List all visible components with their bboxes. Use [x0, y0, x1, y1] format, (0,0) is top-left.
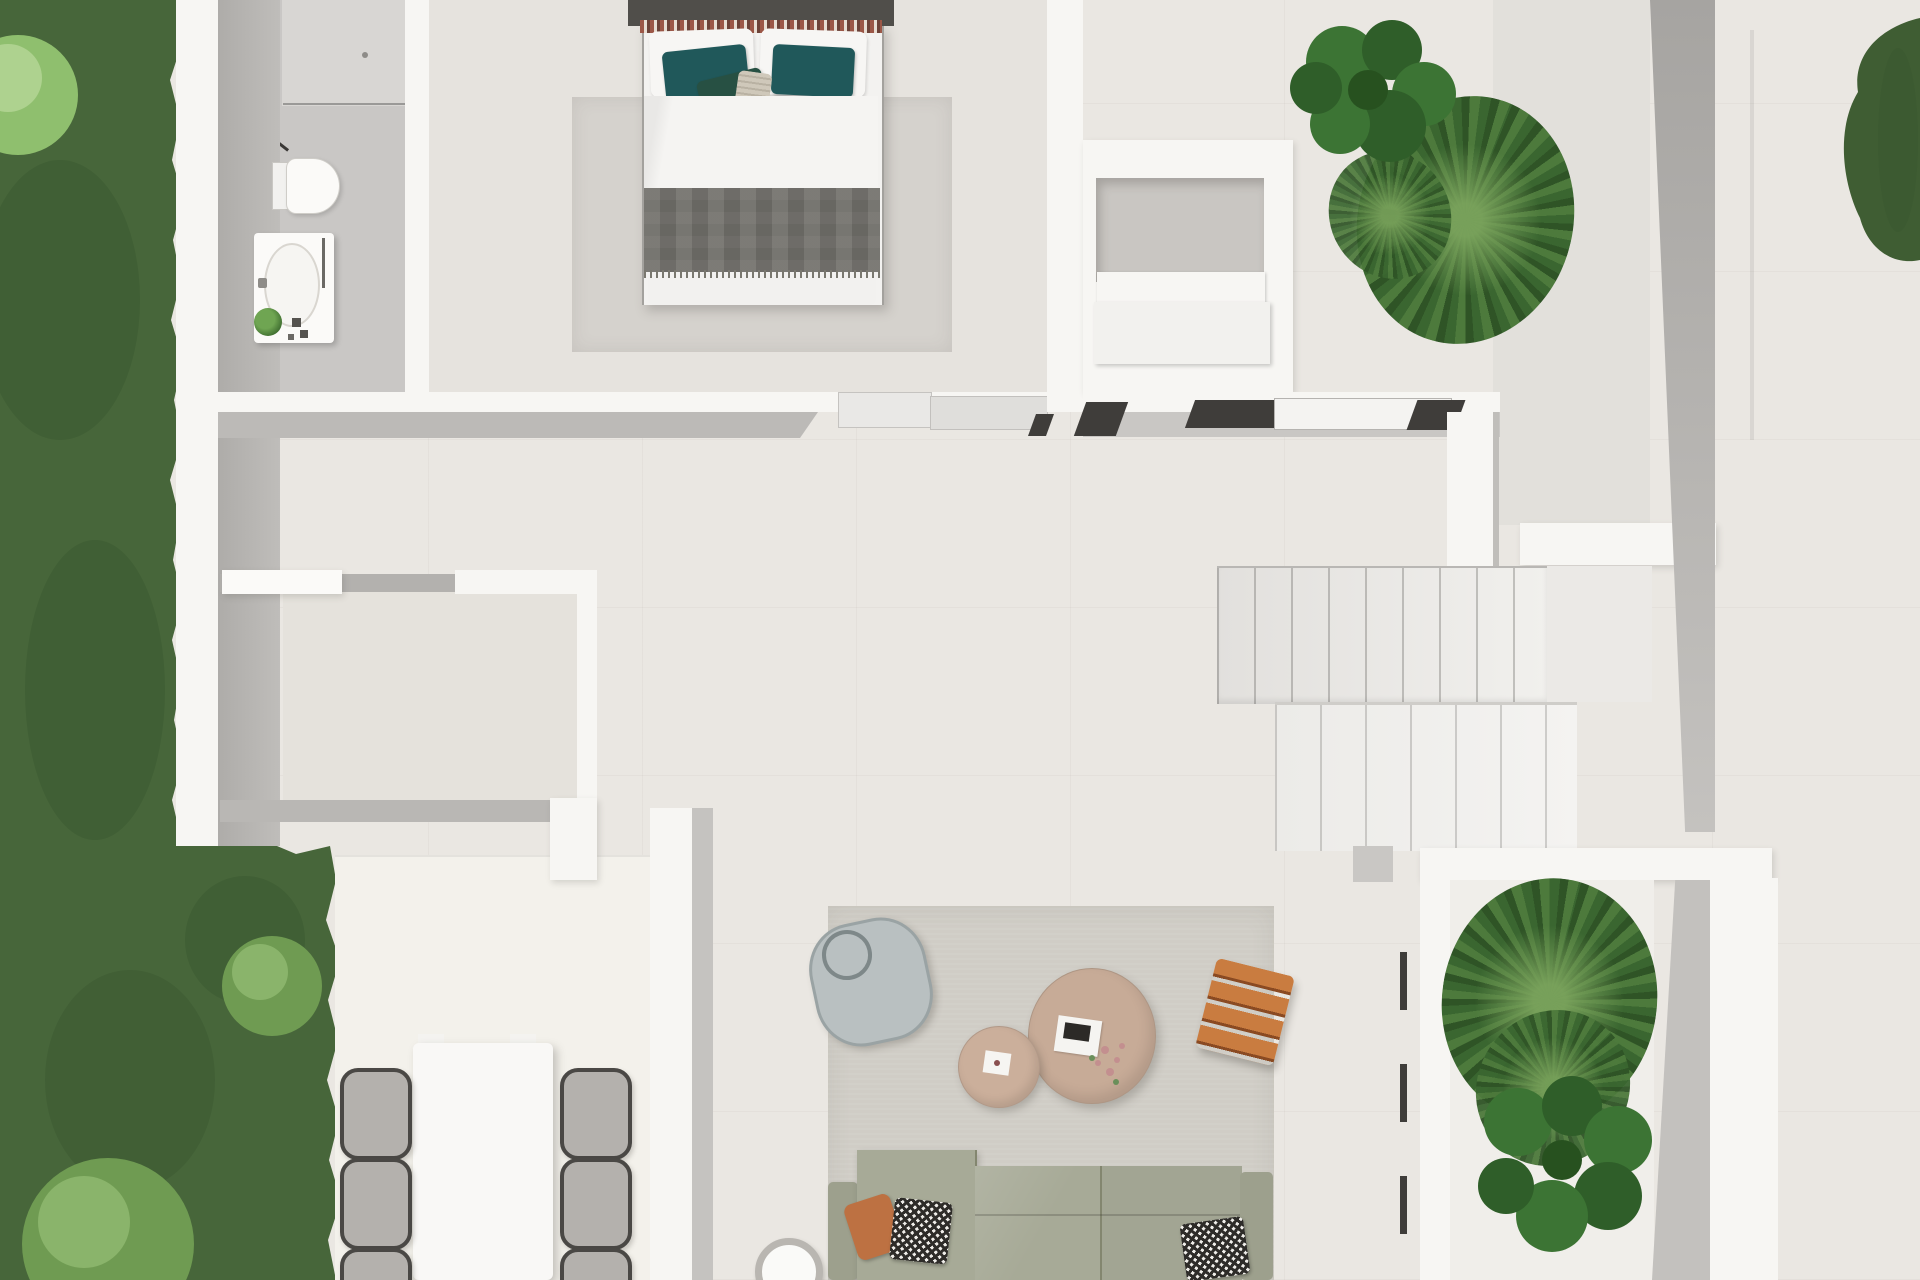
vanity-faucet: [258, 278, 267, 288]
sofa-pillow-checkered: [1179, 1216, 1250, 1280]
vanity-plant: [254, 308, 282, 336]
bed-sheet-foot: [648, 278, 876, 305]
south-wall-face: [218, 412, 818, 438]
planter-right-wall: [1710, 878, 1778, 1280]
coaster: [983, 1050, 1012, 1075]
shrub-bottom-highlight: [38, 1176, 130, 1268]
magazine-cover: [1063, 1022, 1091, 1041]
lawn-shade-patch: [25, 540, 165, 840]
sw-wall-face: [692, 808, 713, 1280]
bath-bedroom-wall: [405, 0, 429, 412]
vanity-accessory: [292, 318, 301, 327]
bed-blanket-fringe: [644, 270, 880, 278]
vanity-accessory: [288, 334, 294, 340]
corner-pillar: [550, 798, 597, 880]
bed-duvet: [644, 96, 878, 190]
storeroom-bottom-wall: [220, 800, 577, 822]
sofa-seat-seam: [975, 1214, 1240, 1216]
storage-box-upper: [1097, 272, 1265, 304]
stair-post: [1353, 846, 1393, 882]
dining-chair: [560, 1248, 632, 1280]
dining-chair: [340, 1158, 412, 1250]
bedroom-east-wall: [1047, 0, 1083, 412]
planter-top-wall: [1420, 848, 1772, 880]
toilet-bowl: [286, 158, 340, 214]
shower-glass-line: [283, 103, 405, 105]
bed-blanket: [644, 188, 880, 272]
sliding-door-panel: [838, 392, 932, 428]
sofa-pillow-checkered: [889, 1197, 953, 1265]
storeroom-top-wall: [455, 570, 597, 594]
west-outer-wall: [176, 0, 218, 846]
dining-chair: [560, 1068, 632, 1160]
planter-left-wall: [1420, 848, 1450, 1280]
sliding-door-panel: [930, 396, 1048, 430]
storage-box-lower: [1094, 302, 1270, 364]
hedge-shade: [1878, 48, 1918, 232]
bed-pillow-teal: [771, 44, 856, 98]
floor-plan-stage: [0, 0, 1920, 1280]
stairs-upper-flight: [1217, 566, 1547, 704]
shrub-mid-highlight: [232, 944, 288, 1000]
dining-table: [413, 1043, 553, 1280]
east-l-wall: [1447, 412, 1499, 578]
dining-chair: [340, 1248, 412, 1280]
storeroom-right-wall: [577, 570, 597, 820]
terrace-edge-line: [1750, 30, 1754, 440]
stair-landing: [1547, 566, 1652, 702]
terrace-door-line: [1400, 952, 1407, 1280]
shower-tray: [282, 0, 405, 106]
lawn-shade-patch: [45, 970, 215, 1190]
storeroom-sliding-door: [222, 570, 342, 594]
storeroom-floor: [283, 592, 577, 818]
sofa-back-middle: [975, 1166, 1100, 1280]
sofa: [828, 1148, 1274, 1280]
bed: [638, 0, 884, 305]
vanity-accessory: [300, 330, 308, 338]
towel-rail: [322, 238, 325, 288]
sw-wall: [650, 808, 692, 1280]
stairs-lower-flight: [1275, 702, 1577, 851]
dining-chair: [340, 1068, 412, 1160]
wardrobe-niche-floor: [1096, 178, 1264, 282]
dining-chair: [560, 1158, 632, 1250]
